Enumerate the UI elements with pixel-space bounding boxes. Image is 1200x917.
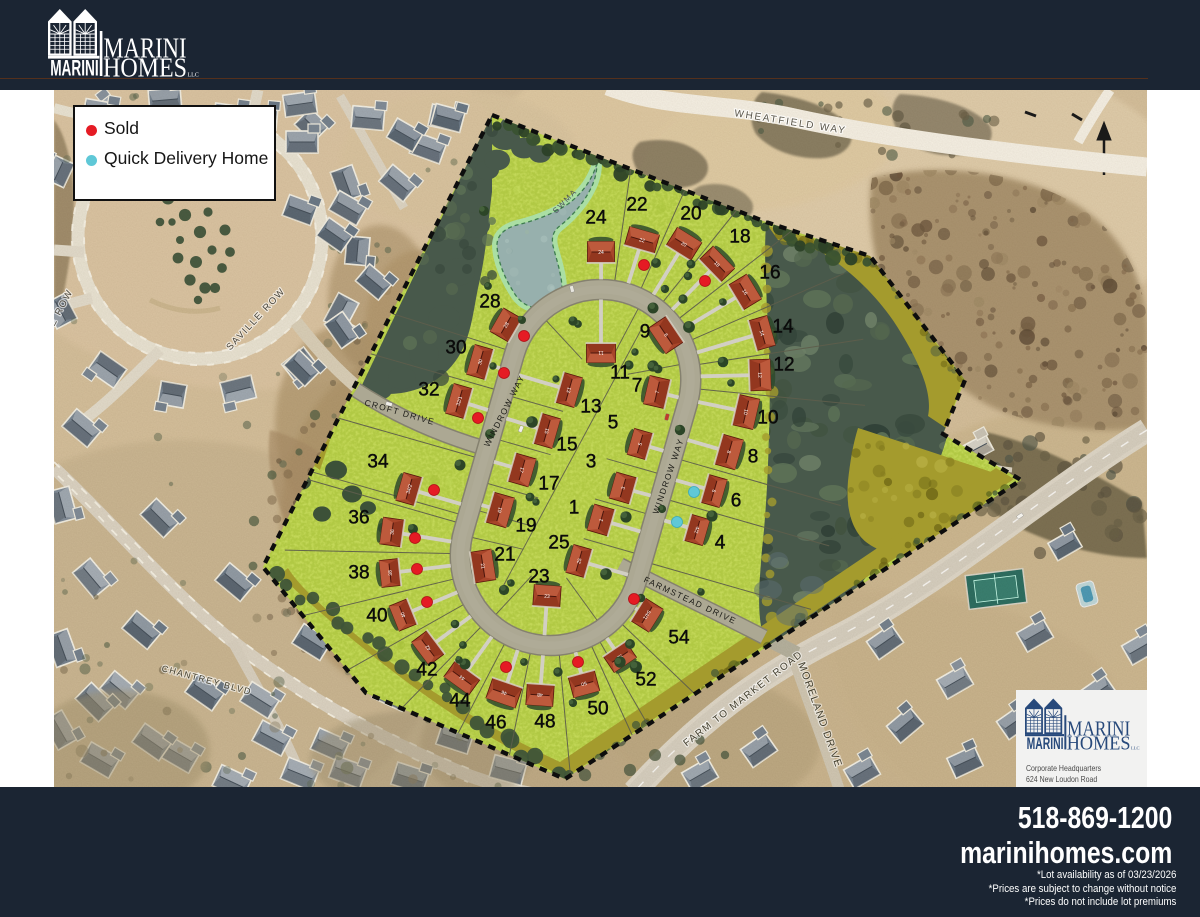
svg-text:22: 22 [626,195,647,216]
svg-text:20: 20 [680,204,701,225]
svg-text:44: 44 [449,691,471,712]
svg-text:1: 1 [569,498,580,519]
svg-text:28: 28 [479,292,500,313]
svg-text:12: 12 [773,355,794,376]
svg-text:38: 38 [387,570,394,576]
svg-text:50: 50 [587,699,608,720]
svg-text:30: 30 [445,338,466,359]
svg-text:4: 4 [715,533,726,554]
svg-text:HOMES: HOMES [103,52,187,82]
svg-text:23: 23 [528,567,549,588]
svg-text:MARINI: MARINI [1027,734,1064,753]
svg-text:36: 36 [389,529,396,536]
svg-text:11: 11 [598,349,603,355]
svg-text:8: 8 [748,447,759,468]
svg-text:MARINI: MARINI [50,56,98,81]
svg-text:38: 38 [348,563,369,584]
svg-text:9: 9 [640,322,651,343]
svg-text:7: 7 [632,376,643,397]
svg-text:3: 3 [586,452,597,473]
svg-text:6: 6 [731,491,742,512]
svg-text:48: 48 [534,712,555,733]
svg-text:19: 19 [515,516,536,537]
svg-text:32: 32 [418,380,439,401]
svg-text:11: 11 [610,363,630,384]
svg-text:23: 23 [544,594,550,600]
svg-text:25: 25 [548,533,569,554]
svg-text:15: 15 [556,435,577,456]
svg-text:54: 54 [668,628,690,649]
svg-text:14: 14 [772,317,794,338]
svg-text:52: 52 [635,670,656,691]
svg-text:HOMES: HOMES [1067,733,1131,755]
svg-text:10: 10 [757,408,778,429]
svg-text:34: 34 [367,452,389,473]
svg-text:LLC: LLC [188,72,199,78]
svg-text:36: 36 [348,508,369,529]
svg-text:46: 46 [485,713,506,734]
svg-text:5: 5 [608,413,619,434]
svg-text:48: 48 [537,691,543,697]
svg-text:18: 18 [729,227,750,248]
svg-text:LLC: LLC [1131,746,1140,751]
svg-text:42: 42 [416,660,437,681]
svg-text:17: 17 [538,474,559,495]
svg-text:13: 13 [580,397,601,418]
svg-text:24: 24 [585,208,607,229]
svg-text:24: 24 [598,250,604,256]
svg-text:12: 12 [756,372,762,378]
svg-text:16: 16 [759,263,780,284]
svg-text:21: 21 [494,545,515,566]
svg-text:40: 40 [366,606,387,627]
